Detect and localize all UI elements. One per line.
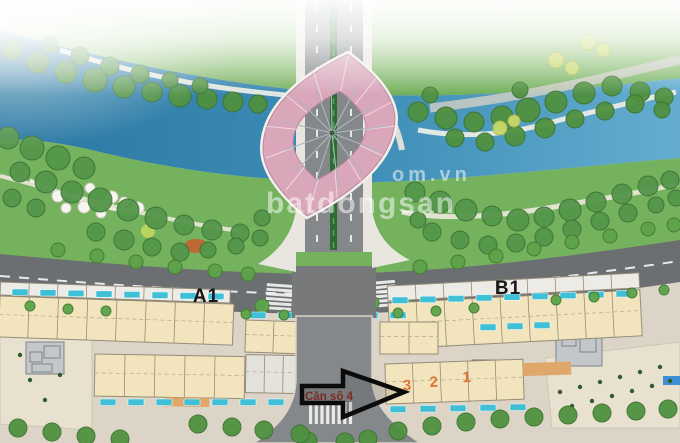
watermark-line2: batdongsan: [266, 187, 456, 220]
watermark-line1: om.vn: [392, 164, 471, 186]
gray-structure-left: [26, 342, 64, 374]
leaf-mast: [330, 131, 335, 136]
unit-pointer-label: Căn số 4: [305, 391, 354, 403]
road-label-a1: A1: [193, 286, 219, 307]
corner-fade: [0, 0, 260, 150]
unit-number-1: 1: [462, 369, 471, 386]
intersection: [292, 266, 376, 318]
masterplan-rendering: om.vn batdongsan A1 B1 3 2 1 Căn số 4: [0, 0, 680, 443]
road-label-b1: B1: [495, 278, 521, 299]
orange-strip-right: [523, 362, 571, 377]
unit-number-2: 2: [429, 374, 438, 391]
masterplan-canvas: om.vn batdongsan A1 B1 3 2 1 Căn số 4: [0, 0, 680, 443]
